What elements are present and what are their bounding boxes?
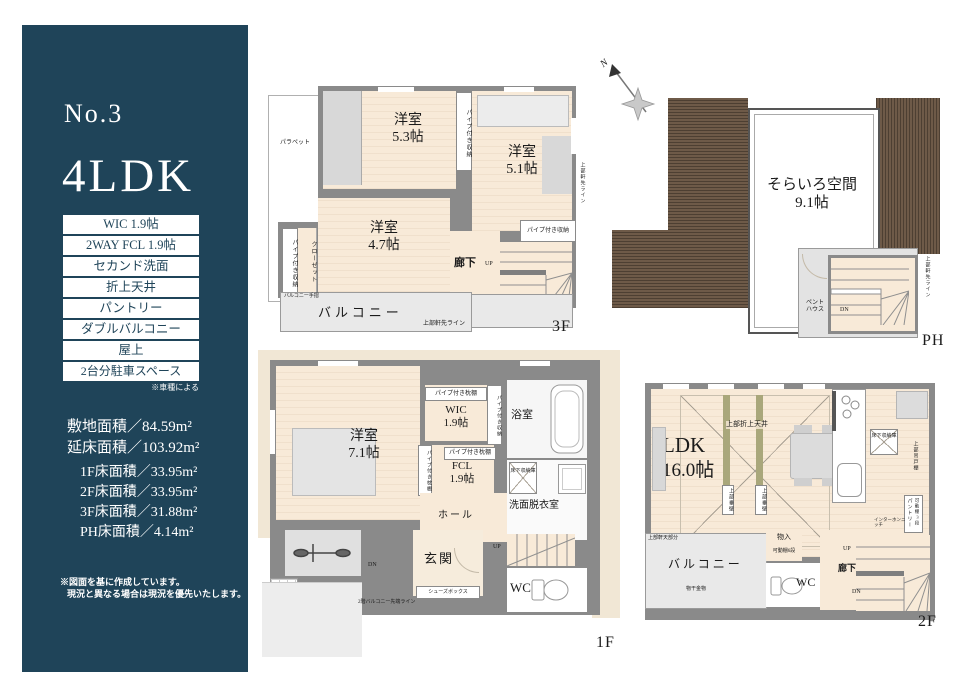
total-floor-area: 延床面積／103.92m² — [67, 436, 199, 457]
hanging-wall-label: 上部垂壁 — [755, 485, 767, 515]
closet-fill — [323, 91, 362, 185]
balcony-tip-line-note: 2階バルコニー先端ライン — [358, 600, 415, 606]
dn-label: DN — [852, 589, 861, 596]
room-53-label: 洋室 5.3帖 — [360, 112, 456, 146]
window-mark — [571, 118, 576, 154]
bicycle-icon — [291, 540, 355, 566]
room-51-label: 洋室 5.1帖 — [472, 144, 572, 178]
window-mark — [378, 87, 414, 92]
feature-badge: 折上天井 — [63, 278, 199, 297]
roof-left-lower — [612, 230, 668, 308]
floor-area-2f: 2F床面積／33.95m² — [80, 481, 197, 501]
toilet-icon — [530, 572, 570, 608]
info-sidebar: No.3 4LDK WIC 1.9帖 2WAY FCL 1.9帖 セカンド洗面 … — [22, 25, 248, 672]
feature-badge: 屋上 — [63, 341, 199, 360]
wc-label: WC — [796, 575, 815, 590]
roof-right — [876, 98, 940, 254]
eaves-soffit-note: 上部軒天部分 — [648, 536, 678, 542]
window-mark — [803, 384, 825, 389]
chair-icon — [794, 425, 812, 433]
intercom-note: インターホンニッチ — [874, 517, 908, 528]
wc-label: WC — [510, 580, 531, 596]
feature-badge: WIC 1.9帖 — [63, 215, 199, 234]
window-mark — [708, 384, 734, 389]
feature-badge: ダブルバルコニー — [63, 320, 199, 339]
underfloor-storage: 床下収納庫 — [509, 462, 537, 494]
plan-1f: 洋室 7.1帖 パイプ付き枕棚 WIC 1.9帖 パイプ付き収納 浴室 パイプ付… — [258, 350, 620, 662]
balcony-label: バルコニー — [318, 302, 403, 321]
wic-label: WIC 1.9帖 — [425, 404, 487, 431]
plan-type: 4LDK — [62, 149, 194, 203]
stairs-1f — [507, 534, 575, 566]
shoe-box: シューズボックス — [416, 586, 480, 599]
window-mark — [318, 361, 358, 366]
dn-label: DN — [840, 307, 849, 314]
hallway-label: 廊下 — [838, 561, 856, 574]
eaves-line-note-vertical: 上部軒先ライン — [924, 256, 930, 314]
pipe-storage-box: パイプ付き収納 — [520, 220, 576, 242]
window-mark — [520, 361, 550, 366]
balcony-rail-note: バルコニー手摺 — [284, 294, 319, 300]
disclaimer-line2: 現況と異なる場合は現況を優先いたします。 — [67, 587, 246, 600]
window-mark — [663, 384, 689, 389]
roof-left — [668, 98, 748, 308]
up-label: UP — [485, 261, 493, 268]
penthouse-label: ペント ハウス — [802, 300, 828, 313]
parapet-label: パラペット — [270, 140, 320, 147]
eaves-line-note-vertical: 上部軒先ライン — [579, 162, 585, 222]
floor-title-2f: 2F — [918, 613, 937, 631]
floor-title-3f: 3F — [552, 318, 571, 336]
fcl-label: FCL 1.9帖 — [430, 460, 494, 487]
feature-badge: 2台分駐車スペース — [63, 362, 199, 381]
washroom-label: 洗面脱衣室 — [509, 496, 559, 511]
plan-ph: N そらいろ空間 9.1帖 ペント ハウス DN 上 — [600, 58, 952, 354]
floor-area-3f: 3F床面積／31.88m² — [80, 501, 197, 521]
rooftop-space-label: そらいろ空間 9.1帖 — [748, 176, 876, 213]
bicycle-area — [285, 530, 361, 576]
up-label: UP — [493, 544, 501, 551]
floor-title-1f: 1F — [596, 634, 615, 652]
sofa-icon — [652, 427, 666, 491]
room-71-label: 洋室 7.1帖 — [314, 428, 414, 462]
site-area: 敷地面積／84.59m² — [67, 415, 192, 436]
floor-plan-sheet: No.3 4LDK WIC 1.9帖 2WAY FCL 1.9帖 セカンド洗面 … — [0, 0, 955, 700]
feature-badge: セカンド洗面 — [63, 257, 199, 276]
pipe-storage-box: パイプ付き収納 — [456, 92, 472, 171]
window-mark — [758, 384, 784, 389]
balcony-label: バルコニー — [668, 555, 743, 572]
chair-icon — [794, 478, 812, 486]
plan-3f: パラペット 洋室 5.3帖 パイプ付き収納 洋室 5.1帖 パイプ付き収納 パイ… — [258, 78, 608, 346]
hanging-wall-label: 上部垂壁 — [722, 485, 734, 515]
cupboard-note: 上部吊戸棚 — [912, 441, 918, 483]
stove-icon — [838, 393, 862, 425]
pipe-storage-box: パイプ付き収納 — [487, 385, 502, 445]
pillow-shelf-box: パイプ付き枕棚 — [444, 447, 496, 460]
closet-shelf-note: 可動棚6段 — [766, 549, 802, 555]
feature-badge: パントリー — [63, 299, 199, 318]
pipe-storage-box: パイプ付き収納 — [282, 228, 298, 296]
range-wall — [832, 391, 836, 431]
pantry-shelf-note: 可動棚3段 — [914, 498, 920, 526]
ldk-label: LDK 16.0帖 — [662, 433, 714, 482]
floor-area-1f: 1F床面積／33.95m² — [80, 461, 197, 481]
dn-label: DN — [368, 562, 377, 569]
laundry-hardware-note: 物干金物 — [686, 587, 706, 593]
hallway-label: 廊下 — [454, 254, 476, 270]
feature-badge: 2WAY FCL 1.9帖 — [63, 236, 199, 255]
bed-icon — [477, 95, 569, 127]
north-compass-icon — [602, 60, 660, 122]
hall-label: ホール — [438, 506, 474, 521]
closet-label: 物入 — [766, 534, 802, 542]
closet-label: クローゼット — [298, 228, 317, 294]
underfloor-storage: 床下収納庫 — [870, 429, 898, 455]
stairs-2f — [856, 535, 930, 611]
refrigerator-space — [896, 391, 928, 419]
room-47-label: 洋室 4.7帖 — [318, 220, 450, 254]
driveway — [262, 582, 362, 657]
floor-title-ph: PH — [922, 332, 944, 350]
coffered-label: 上部折上天井 — [726, 421, 768, 429]
bath-label: 浴室 — [511, 406, 533, 422]
unit-number: No.3 — [64, 99, 123, 129]
pillow-shelf-box: パイプ付き枕棚 — [425, 387, 487, 401]
plan-2f: 上部垂壁 上部垂壁 上部折上天井 LDK 16.0帖 床下収納庫 上部吊戸棚 パ… — [638, 375, 950, 631]
window-mark — [270, 410, 275, 454]
stairs-ph — [828, 255, 918, 334]
bathtub-icon — [550, 384, 584, 454]
up-label: UP — [843, 546, 851, 553]
washer-icon — [558, 464, 586, 494]
feature-note: ※車種による — [63, 382, 199, 393]
entrance-label: 玄関 — [424, 548, 454, 567]
eaves-line-note: 上部軒先ライン — [423, 321, 465, 328]
sink-icon — [837, 463, 862, 497]
floor-area-ph: PH床面積／4.14m² — [80, 521, 193, 541]
window-mark — [504, 87, 534, 92]
